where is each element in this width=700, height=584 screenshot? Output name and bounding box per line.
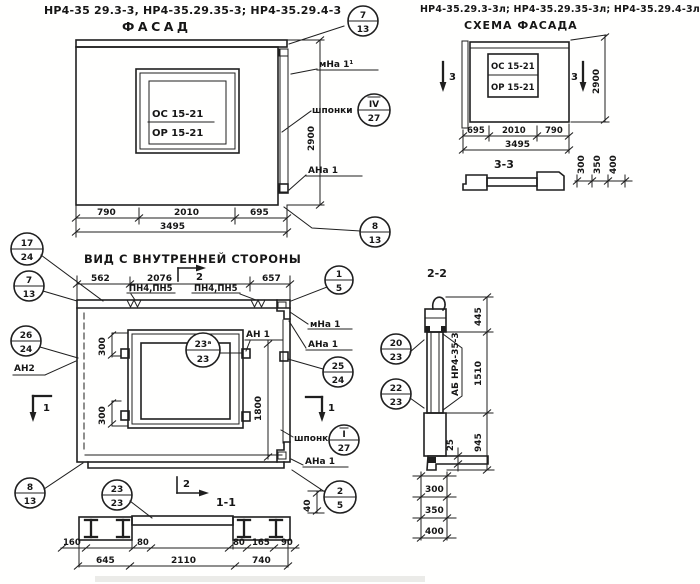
dim-160: 160 xyxy=(63,538,81,548)
scheme-section-mark-left: 3 xyxy=(440,62,456,92)
svg-text:1: 1 xyxy=(328,403,335,414)
dim-740: 740 xyxy=(252,556,271,566)
inner-dim-1800: 1800 xyxy=(254,396,264,421)
drawing-sheet: НР4-35 29.3-3, НР4-35.29.35-3; НР4-35.29… xyxy=(0,0,700,584)
svg-text:13: 13 xyxy=(23,290,36,300)
dim-445: 445 xyxy=(474,307,484,326)
callout-inner-7-13: 7 13 xyxy=(14,271,77,301)
facade-dim-left: 790 xyxy=(97,208,116,218)
svg-text:5: 5 xyxy=(336,284,342,294)
svg-text:7: 7 xyxy=(360,11,366,21)
section-2-2-label: 2-2 xyxy=(427,267,447,280)
scheme-dim-left: 695 xyxy=(467,126,485,136)
facade-dim-total: 3495 xyxy=(160,222,185,232)
scheme-bottom-dims: 695 2010 790 3495 xyxy=(459,124,573,154)
callout-inner-8-13: 8 13 xyxy=(15,463,83,508)
facade-label-mna: мНа 1¹ xyxy=(319,60,353,70)
section-3-3-profile xyxy=(463,172,564,190)
inner-side-view: 17 24 7 13 26 24 ВИД С ВНУТРЕННЕЙ СТОРОН… xyxy=(11,233,359,518)
inner-section-1-marker-right: 1 xyxy=(306,397,335,422)
dim-90: 90 xyxy=(281,538,293,548)
dim-25: 25 xyxy=(446,439,456,451)
facade-title: НР4-35 29.3-3, НР4-35.29.35-3; НР4-35.29… xyxy=(44,4,341,17)
inner-label-an1: АН 1 xyxy=(245,330,282,351)
dim-350: 350 xyxy=(425,506,444,516)
dim-80a: 80 xyxy=(137,538,149,548)
svg-text:22: 22 xyxy=(390,384,403,394)
svg-text:20: 20 xyxy=(390,339,403,349)
scheme-dim-height: 2900 xyxy=(592,69,602,94)
scheme-dim-total: 3495 xyxy=(505,140,530,150)
scheme-title: НР4-35.29.3-3л; НР4-35.29.35-3л; НР4-35.… xyxy=(420,4,700,15)
svg-text:40: 40 xyxy=(303,499,313,512)
facade-view-label: ФАСАД xyxy=(122,19,192,34)
scheme-dim-mid: 2010 xyxy=(502,126,526,136)
callout-inner-23a-23: 23ᵃ 23 xyxy=(186,333,241,367)
section-1-1-label: 1-1 xyxy=(216,496,236,509)
inner-section-2-marker-bottom: 2 xyxy=(177,477,209,496)
svg-text:25: 25 xyxy=(332,362,345,372)
svg-text:23: 23 xyxy=(111,485,124,495)
inner-label-an2: АН2 xyxy=(13,361,76,375)
inner-dim-300a: 300 xyxy=(98,337,108,356)
dim-2110: 2110 xyxy=(171,556,196,566)
svg-text:7: 7 xyxy=(26,276,32,286)
callout-sec22-20-23: 20 23 xyxy=(381,334,424,364)
facade-dim-mid: 2010 xyxy=(174,208,199,218)
svg-text:8: 8 xyxy=(372,222,378,232)
facade-window: ОС 15-21 ОР 15-21 xyxy=(136,69,239,153)
inner-dim-300b: 300 xyxy=(98,406,108,425)
scheme-view-label: СХЕМА ФАСАДА xyxy=(464,19,578,32)
callout-inner-26-24: 26 24 xyxy=(11,326,78,358)
inner-dim-562: 562 xyxy=(91,274,110,284)
dim-80b: 80 xyxy=(233,538,245,548)
section-3-3-label: 3-3 xyxy=(494,158,514,171)
callout-inner-23-23: 23 23 xyxy=(102,480,152,518)
dim-945: 945 xyxy=(474,433,484,452)
scheme-window-mark-2: ОР 15-21 xyxy=(491,83,535,93)
svg-text:400: 400 xyxy=(609,155,619,174)
callout-inner-key-1-27: I 27 xyxy=(329,425,359,455)
inner-dim-657: 657 xyxy=(262,274,281,284)
inner-label-ana-top: АНа 1 xyxy=(308,340,338,350)
svg-text:13: 13 xyxy=(369,236,382,246)
svg-text:3: 3 xyxy=(571,72,578,83)
dim-1510: 1510 xyxy=(474,361,484,386)
svg-text:23: 23 xyxy=(111,499,124,509)
svg-text:13: 13 xyxy=(24,497,37,507)
svg-text:27: 27 xyxy=(338,444,351,454)
svg-text:26: 26 xyxy=(20,331,33,341)
section-1-1-dims: 160 80 80 165 90 645 2110 740 xyxy=(58,525,299,570)
facade-dim-right: 695 xyxy=(250,208,269,218)
inner-view-label: ВИД С ВНУТРЕННЕЙ СТОРОНЫ xyxy=(84,251,301,266)
svg-text:1: 1 xyxy=(336,270,342,280)
inner-dim-2076: 2076 xyxy=(147,274,172,284)
dim-300: 300 xyxy=(425,485,444,495)
callout-inner-25-24: 25 24 xyxy=(288,357,353,387)
svg-text:24: 24 xyxy=(21,253,34,263)
svg-text:1: 1 xyxy=(43,403,50,414)
facade-view: НР4-35 29.3-3, НР4-35.29.35-3; НР4-35.29… xyxy=(44,4,390,247)
callout-sec22-22-23: 22 23 xyxy=(381,379,424,409)
svg-text:23: 23 xyxy=(197,355,210,365)
inner-panel-outline xyxy=(77,300,290,468)
svg-text:13: 13 xyxy=(357,25,370,35)
callout-facade-key-iv-27: IV 27 xyxy=(358,94,390,126)
scheme-dim-right: 790 xyxy=(545,126,563,136)
svg-text:8: 8 xyxy=(27,483,33,493)
facade-label-shponki: шпонки xyxy=(312,106,353,116)
svg-text:АН2: АН2 xyxy=(14,364,35,374)
svg-text:24: 24 xyxy=(332,376,345,386)
facade-scheme-view: НР4-35.29.3-3л; НР4-35.29.35-3л; НР4-35.… xyxy=(420,4,700,190)
svg-text:27: 27 xyxy=(368,114,381,124)
facade-label-ana: АНа 1 xyxy=(308,166,338,176)
inner-section-1-marker-left: 1 xyxy=(30,396,51,422)
beam-mark-label: АБ НР4-35-3 xyxy=(451,332,461,396)
inner-label-ana-bottom: АНа 1 xyxy=(305,457,335,467)
svg-text:24: 24 xyxy=(20,345,33,355)
facade-bottom-dims: 790 2010 695 3495 xyxy=(72,205,291,237)
facade-window-mark-2: ОР 15-21 xyxy=(152,128,203,139)
svg-text:5: 5 xyxy=(337,501,343,511)
section-2-2: 2-2 АБ НР4-35-3 20 23 22 23 xyxy=(381,267,494,542)
scheme-section-mark-right: 3 xyxy=(571,62,586,92)
callout-facade-8-13: 8 13 xyxy=(284,207,390,247)
svg-text:АН 1: АН 1 xyxy=(246,330,270,340)
inner-dim-40: 40 xyxy=(303,490,324,515)
inner-section-2-marker-top: 2 xyxy=(178,265,206,283)
svg-text:2: 2 xyxy=(183,479,190,490)
svg-text:23ᵃ: 23ᵃ xyxy=(195,340,212,350)
inner-top-dims: 562 2076 657 xyxy=(73,274,294,300)
dim-165: 165 xyxy=(252,538,270,548)
svg-text:3: 3 xyxy=(449,72,456,83)
svg-text:350: 350 xyxy=(593,155,603,174)
facade-dim-height: 2900 xyxy=(307,126,317,151)
facade-side-labels: мНа 1¹ шпонки АНа 1 xyxy=(282,60,378,190)
svg-text:23: 23 xyxy=(390,353,403,363)
facade-window-mark-1: ОС 15-21 xyxy=(152,109,203,120)
svg-text:300: 300 xyxy=(577,155,587,174)
svg-text:I: I xyxy=(342,430,345,440)
svg-text:17: 17 xyxy=(21,239,34,249)
dim-645: 645 xyxy=(96,556,115,566)
scheme-window-mark-1: ОС 15-21 xyxy=(491,62,535,72)
callout-inner-1-5: 1 5 xyxy=(291,266,353,301)
scan-smudge xyxy=(95,576,425,582)
inner-window xyxy=(121,330,250,428)
svg-text:2: 2 xyxy=(196,272,203,283)
svg-text:23: 23 xyxy=(390,398,403,408)
scheme-window: ОС 15-21 ОР 15-21 xyxy=(488,54,538,97)
inner-anchor-labels: ПН4,ПН5 ПН4,ПН5 xyxy=(127,284,265,307)
section-1-1: 160 80 80 165 90 645 2110 740 xyxy=(58,516,299,570)
section-3-3-dims: 300 350 400 xyxy=(573,155,632,187)
drawing-canvas: НР4-35 29.3-3, НР4-35.29.35-3; НР4-35.29… xyxy=(0,0,700,584)
svg-text:IV: IV xyxy=(369,100,379,110)
dim-400: 400 xyxy=(425,527,444,537)
svg-text:2: 2 xyxy=(337,487,343,497)
section-1-1-profile xyxy=(79,516,290,540)
